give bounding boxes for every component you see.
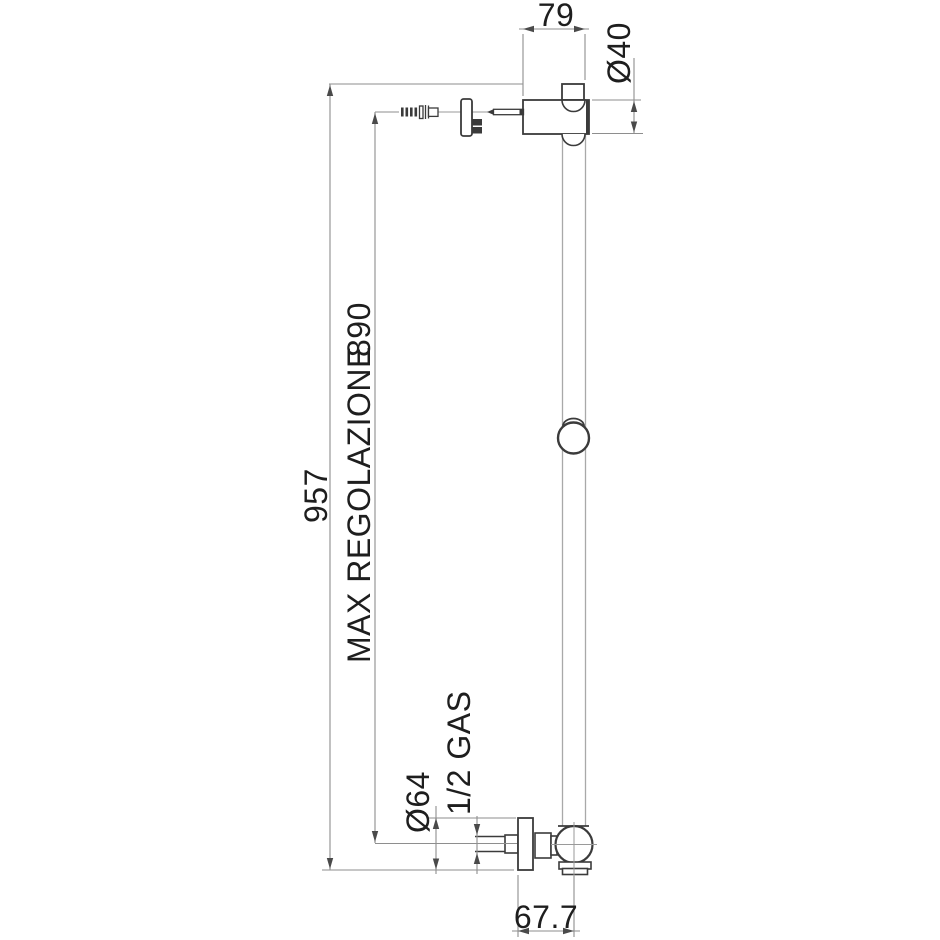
screw-tip xyxy=(487,109,494,114)
wall-bracket xyxy=(523,84,589,146)
dimension-max-adjustment: MAX REGOLAZIONE 890 xyxy=(341,112,517,844)
outlet-adapter xyxy=(535,833,551,858)
drawing-canvas: 79 Ø40 957 MAX REGOLAZIONE 890 Ø64 xyxy=(0,0,940,940)
slider-holder xyxy=(558,419,589,454)
bracket-bottom-arc-fill xyxy=(562,134,585,146)
technical-drawing: 79 Ø40 957 MAX REGOLAZIONE 890 Ø64 xyxy=(0,0,940,940)
plate-tab-bottom xyxy=(472,127,482,134)
hose-nut xyxy=(563,869,588,875)
water-outlet-assembly xyxy=(475,818,597,881)
dim-677-label: 67.7 xyxy=(514,899,578,935)
dim-79-label: 79 xyxy=(538,0,575,33)
dim-o64-label: Ø64 xyxy=(400,771,436,833)
dim-half-gas-label: 1/2 GAS xyxy=(441,691,477,815)
dimension-wall-offset: 67.7 xyxy=(512,875,580,937)
rail-tube xyxy=(563,99,586,826)
fixing-screw xyxy=(487,109,524,114)
wall-plug xyxy=(401,105,438,119)
wall-plate xyxy=(461,99,482,136)
dimension-total-height: 957 xyxy=(298,84,523,870)
dim-max-regolazione-label: MAX REGOLAZIONE xyxy=(341,346,377,663)
bracket-body xyxy=(523,100,589,134)
dimension-bracket-diameter: Ø40 xyxy=(592,22,643,133)
dim-890-value: 890 xyxy=(341,302,377,357)
dimension-connection-thread: 1/2 GAS xyxy=(441,691,480,874)
dim-957-label: 957 xyxy=(298,468,334,523)
bracket-clamp-face xyxy=(586,100,589,134)
slider-knob xyxy=(558,423,589,454)
outlet-flange xyxy=(518,818,533,870)
dimension-top-width: 79 xyxy=(519,0,589,96)
wall-fasteners xyxy=(401,99,524,136)
plate-tab-top xyxy=(472,119,482,126)
dim-o40-label: Ø40 xyxy=(601,22,637,84)
screw-end xyxy=(520,109,524,114)
rail-top-cap xyxy=(562,84,584,100)
screw-shaft xyxy=(494,109,524,114)
